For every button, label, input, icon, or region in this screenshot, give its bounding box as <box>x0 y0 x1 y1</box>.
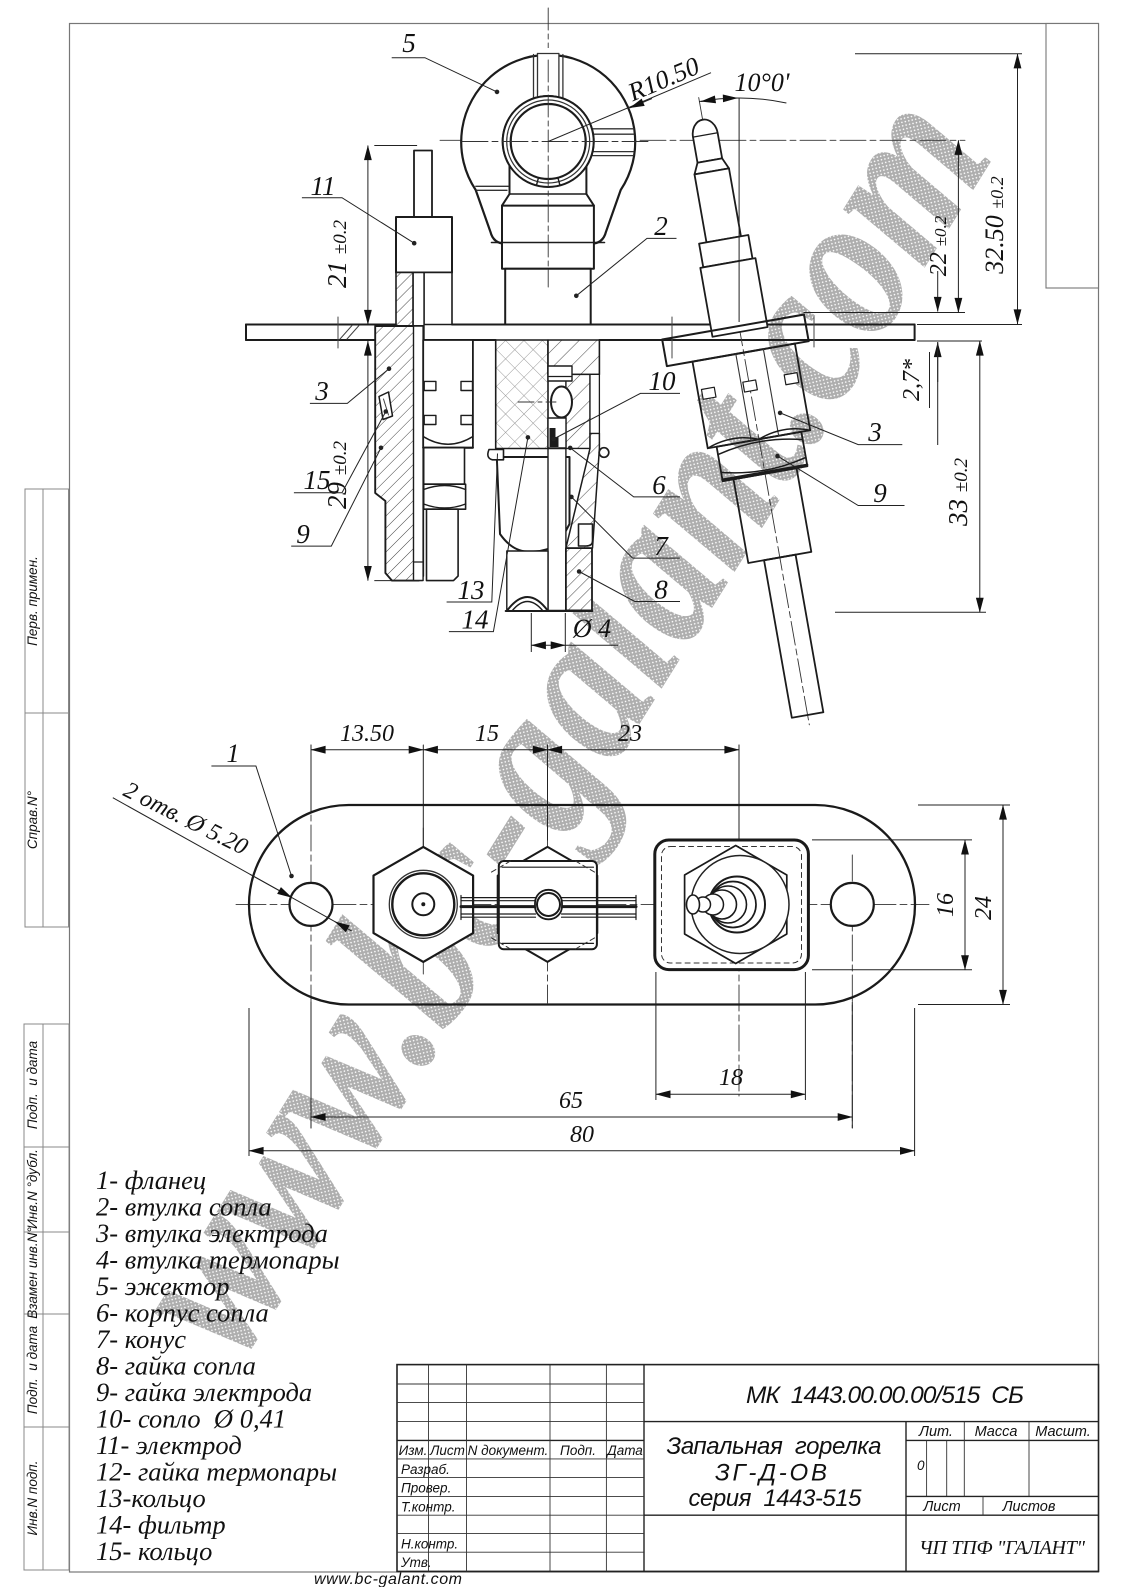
svg-text:11: 11 <box>311 171 336 201</box>
svg-text:ЗГ-Д-ОВ: ЗГ-Д-ОВ <box>715 1460 827 1487</box>
svg-text:14: 14 <box>462 605 489 635</box>
svg-text:80: 80 <box>570 1122 594 1148</box>
svg-text:Провер.: Провер. <box>401 1481 451 1496</box>
svg-text:Масса: Масса <box>975 1424 1018 1440</box>
svg-text:15- кольцо: 15- кольцо <box>96 1536 212 1566</box>
svg-text:Листов: Листов <box>1002 1499 1056 1515</box>
svg-text:Утв.: Утв. <box>400 1555 432 1570</box>
svg-text:8: 8 <box>654 575 668 605</box>
svg-text:18: 18 <box>719 1065 743 1091</box>
svg-text:Лит.: Лит. <box>918 1424 953 1440</box>
svg-text:Инв.N подп.: Инв.N подп. <box>25 1461 40 1536</box>
svg-text:13: 13 <box>458 575 485 605</box>
svg-text:Взамен инв.N°: Взамен инв.N° <box>25 1227 40 1319</box>
svg-text:23: 23 <box>618 721 642 747</box>
svg-text:65: 65 <box>559 1088 583 1114</box>
svg-text:14- фильтр: 14- фильтр <box>96 1510 226 1540</box>
svg-text:12- гайка термопары: 12- гайка термопары <box>96 1457 337 1487</box>
svg-text:10: 10 <box>649 366 677 396</box>
svg-text:5: 5 <box>402 28 416 58</box>
svg-text:7- конус: 7- конус <box>96 1324 186 1354</box>
svg-text:МК 1443.00.00.00/515 СБ: МК 1443.00.00.00/515 СБ <box>746 1382 1024 1409</box>
svg-text:8- гайка сопла: 8- гайка сопла <box>96 1351 256 1381</box>
svg-text:3: 3 <box>314 376 329 406</box>
svg-text:Масшт.: Масшт. <box>1035 1424 1091 1440</box>
svg-text:1: 1 <box>227 739 240 768</box>
svg-text:Перв. примен.: Перв. примен. <box>25 556 40 646</box>
svg-text:Инв.N °дубл.: Инв.N °дубл. <box>25 1149 40 1229</box>
svg-text:5- эжектор: 5- эжектор <box>96 1271 229 1301</box>
svg-text:1- фланец: 1- фланец <box>96 1165 206 1195</box>
svg-text:13-кольцо: 13-кольцо <box>96 1483 206 1513</box>
svg-text:7: 7 <box>654 531 669 561</box>
svg-text:ЧП ТПФ "ГАЛАНТ": ЧП ТПФ "ГАЛАНТ" <box>919 1537 1086 1559</box>
svg-text:2: 2 <box>654 211 668 241</box>
svg-text:Н.контр.: Н.контр. <box>401 1537 458 1552</box>
svg-text:серия 1443-515: серия 1443-515 <box>689 1485 863 1512</box>
svg-text:9: 9 <box>873 478 887 508</box>
svg-text:N документ.: N документ. <box>468 1443 549 1458</box>
svg-text:Ø 4: Ø 4 <box>572 614 611 643</box>
svg-text:9: 9 <box>296 519 310 549</box>
svg-text:Подп. и дата: Подп. и дата <box>25 1325 40 1414</box>
svg-text:13.50: 13.50 <box>340 721 394 747</box>
svg-text:15: 15 <box>475 721 499 747</box>
svg-text:2,7*: 2,7* <box>899 359 925 401</box>
svg-text:Т.контр.: Т.контр. <box>401 1500 455 1515</box>
svg-text:2- втулка сопла: 2- втулка сопла <box>96 1192 272 1222</box>
svg-text:3: 3 <box>867 417 882 447</box>
svg-text:9- гайка электрода: 9- гайка электрода <box>96 1377 312 1407</box>
svg-text:6: 6 <box>652 470 666 500</box>
svg-text:15: 15 <box>304 465 331 495</box>
svg-text:6- корпус сопла: 6- корпус сопла <box>96 1298 269 1328</box>
svg-text:0: 0 <box>917 1458 925 1473</box>
svg-text:11- электрод: 11- электрод <box>96 1430 242 1460</box>
svg-text:Лист: Лист <box>429 1443 465 1458</box>
svg-text:Запальная горелка: Запальная горелка <box>667 1433 882 1460</box>
svg-text:3- втулка электрода: 3- втулка электрода <box>95 1218 328 1248</box>
svg-text:Подп. и дата: Подп. и дата <box>25 1040 40 1129</box>
svg-text:24: 24 <box>971 896 997 920</box>
svg-text:10°0': 10°0' <box>735 68 790 97</box>
svg-text:Дата: Дата <box>605 1443 643 1458</box>
svg-text:10- сопло Ø 0,41: 10- сопло Ø 0,41 <box>96 1404 286 1434</box>
svg-text:Разраб.: Разраб. <box>401 1462 450 1477</box>
svg-text:Лист: Лист <box>922 1499 960 1515</box>
svg-text:Справ.N°: Справ.N° <box>25 790 40 849</box>
svg-text:www.bc-galant.com: www.bc-galant.com <box>314 1571 462 1587</box>
svg-text:Изм.: Изм. <box>399 1443 428 1458</box>
svg-text:16: 16 <box>933 893 959 917</box>
svg-text:4- втулка термопары: 4- втулка термопары <box>96 1245 340 1275</box>
svg-text:Подп.: Подп. <box>560 1443 596 1458</box>
